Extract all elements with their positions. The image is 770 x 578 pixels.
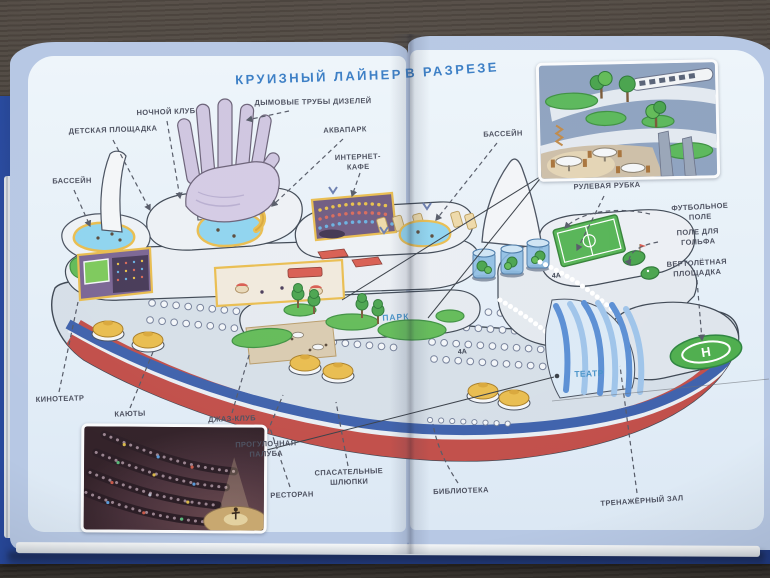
label-pool-left: БАССЕЙН [52,176,92,186]
label-night-club: НОЧНОЙ КЛУБ [136,106,195,118]
label-restaurant: РЕСТОРАН [270,489,314,500]
label-pool-right: БАССЕЙН [483,128,523,139]
label-aquapark: АКВАПАРК [323,124,367,135]
label-theater: ТЕАТР [574,368,604,380]
deck-marker: 4А [458,348,467,356]
theater-pointer-dot [555,374,560,379]
label-golf-course: ПОЛЕ ДЛЯ ГОЛЬФА [662,225,735,248]
label-promenade-deck: ПРОГУЛОЧНАЯ ПАЛУБА [235,438,297,460]
park-deck-label: ПАРК [382,311,410,322]
label-smoke-stacks: ДЫМОВЫЕ ТРУБЫ ДИЗЕЛЕЙ [254,96,371,108]
jazz-club-cutaway [215,260,344,306]
striped-glass-roof [546,299,642,398]
label-cabins: КАЮТЫ [114,409,146,420]
right-pool [400,221,451,246]
label-internet-cafe: ИНТЕРНЕТ- КАФЕ [335,151,382,172]
label-library: БИБЛИОТЕКА [433,485,489,497]
label-jazz-club: ДЖАЗ-КЛУБ [208,413,256,424]
inset-park-cafe [536,59,720,182]
label-football-field: ФУТБОЛЬНОЕ ПОЛЕ [665,200,736,223]
cinema-screen [84,259,109,284]
funnel-hand [177,99,282,222]
bridge-cone [482,159,542,248]
label-cinema: КИНОТЕАТР [36,393,85,404]
label-lifeboats: СПАСАТЕЛЬНЫЕ ШЛЮПКИ [314,466,383,488]
photo-scene: ПАРК 4А 4А [0,0,770,578]
cinema-cutaway [78,248,152,300]
label-helipad: ВЕРТОЛЁТНАЯ ПЛОЩАДКА [666,257,727,280]
